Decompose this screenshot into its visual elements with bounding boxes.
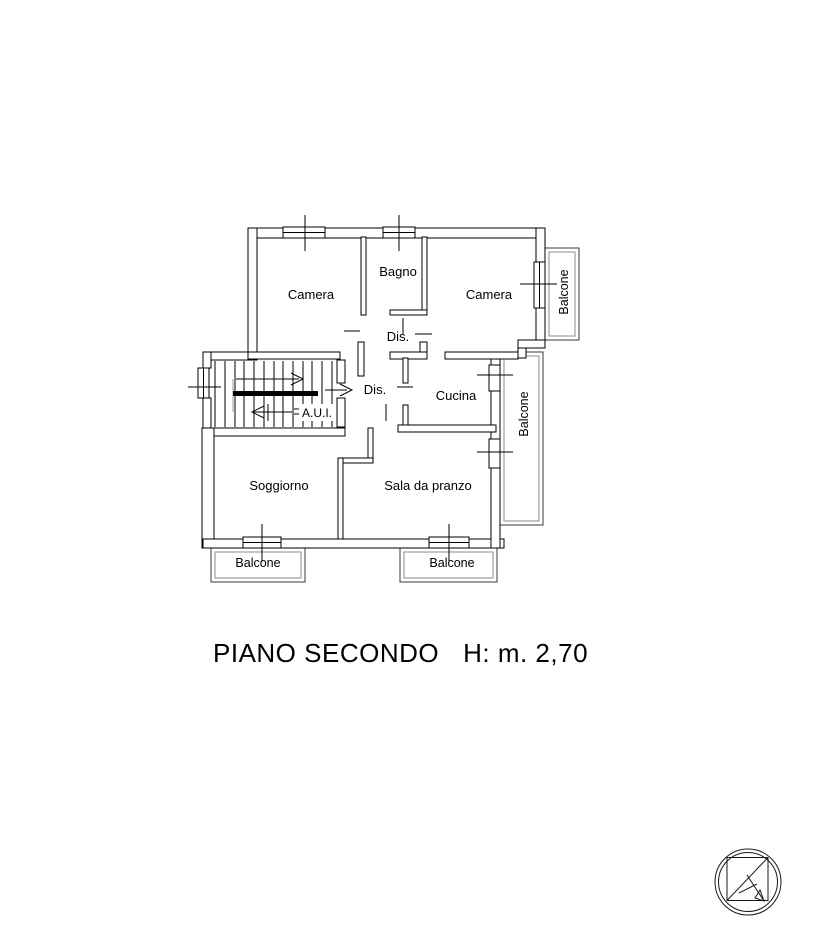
- balcony-inner-outline: [504, 356, 539, 521]
- balcony-label: Balcone: [429, 556, 474, 570]
- wall-step-dis-sala: [368, 428, 373, 460]
- balcony-door-camera-right: [520, 262, 557, 308]
- wall-cucina-left-a: [403, 358, 408, 383]
- wall-stair-bottom: [203, 428, 345, 436]
- balcony-label: Balcone: [557, 269, 571, 314]
- window-stairwell: [188, 368, 221, 398]
- balcony-label: Balcone: [235, 556, 280, 570]
- wall-step-horizontal: [518, 340, 545, 348]
- wall-corridor-left: [248, 352, 340, 359]
- wall-bagno-right: [422, 237, 427, 315]
- balcony-door-cucina: [477, 365, 513, 391]
- wall-step-vertical: [518, 348, 526, 358]
- wall-stair-left-a: [203, 352, 211, 368]
- room-label-dis-lower: Dis.: [364, 382, 386, 397]
- balcony-bottom-left: Balcone: [211, 548, 305, 582]
- room-label-sala-da-pranzo: Sala da pranzo: [384, 478, 471, 493]
- door-jamb-stub: [420, 342, 427, 352]
- wall-bagno-left: [361, 237, 366, 315]
- wall-right-upper-a: [536, 228, 545, 262]
- wall-stair-right-a: [337, 360, 345, 383]
- wall-bagno-bottom: [390, 310, 427, 315]
- logo-outer-circle: [715, 849, 781, 915]
- wall-corridor-right: [445, 352, 518, 359]
- room-label-soggiorno: Soggiorno: [249, 478, 308, 493]
- north-arrow-compass-icon: [715, 849, 781, 915]
- wall-left-upper: [248, 228, 257, 358]
- balcony-label: Balcone: [517, 391, 531, 436]
- room-label-dis-upper: Dis.: [387, 329, 409, 344]
- caption-floor-name: PIANO SECONDO: [213, 638, 439, 669]
- door-frame: [489, 365, 500, 391]
- room-label-camera-right: Camera: [466, 287, 513, 302]
- balcony-door-sala: [477, 439, 513, 468]
- balcony-right-top: Balcone: [545, 248, 579, 340]
- wall-soggiorno-sala: [338, 458, 343, 539]
- room-label-cucina: Cucina: [436, 388, 477, 403]
- balcony-outline: [500, 352, 543, 525]
- room-label-bagno: Bagno: [379, 264, 417, 279]
- wall-left-lower: [202, 428, 214, 548]
- room-label-aui: A.U.I.: [302, 406, 332, 420]
- floor-plan-drawing: Balcone Balcone Balcone Balcone: [0, 0, 823, 939]
- balcony-right-middle: Balcone: [500, 352, 543, 525]
- wall-right-lower-c: [491, 468, 500, 548]
- door-frame: [489, 439, 500, 468]
- door-jamb-passage: [358, 342, 364, 376]
- wall-stair-right-b: [337, 398, 345, 427]
- wall-cucina-bottom: [398, 425, 496, 432]
- floor-plan-page: Balcone Balcone Balcone Balcone: [0, 0, 823, 939]
- entrance-arrow: [325, 384, 352, 396]
- caption-ceiling-height: H: m. 2,70: [463, 638, 588, 669]
- plan-caption: PIANO SECONDO H: m. 2,70: [213, 638, 588, 669]
- window-camera-left: [283, 215, 325, 251]
- stair-landing-bar: [233, 391, 318, 396]
- room-label-camera-left: Camera: [288, 287, 335, 302]
- window-bagno: [383, 215, 415, 251]
- stair-down-arrow: [252, 404, 292, 421]
